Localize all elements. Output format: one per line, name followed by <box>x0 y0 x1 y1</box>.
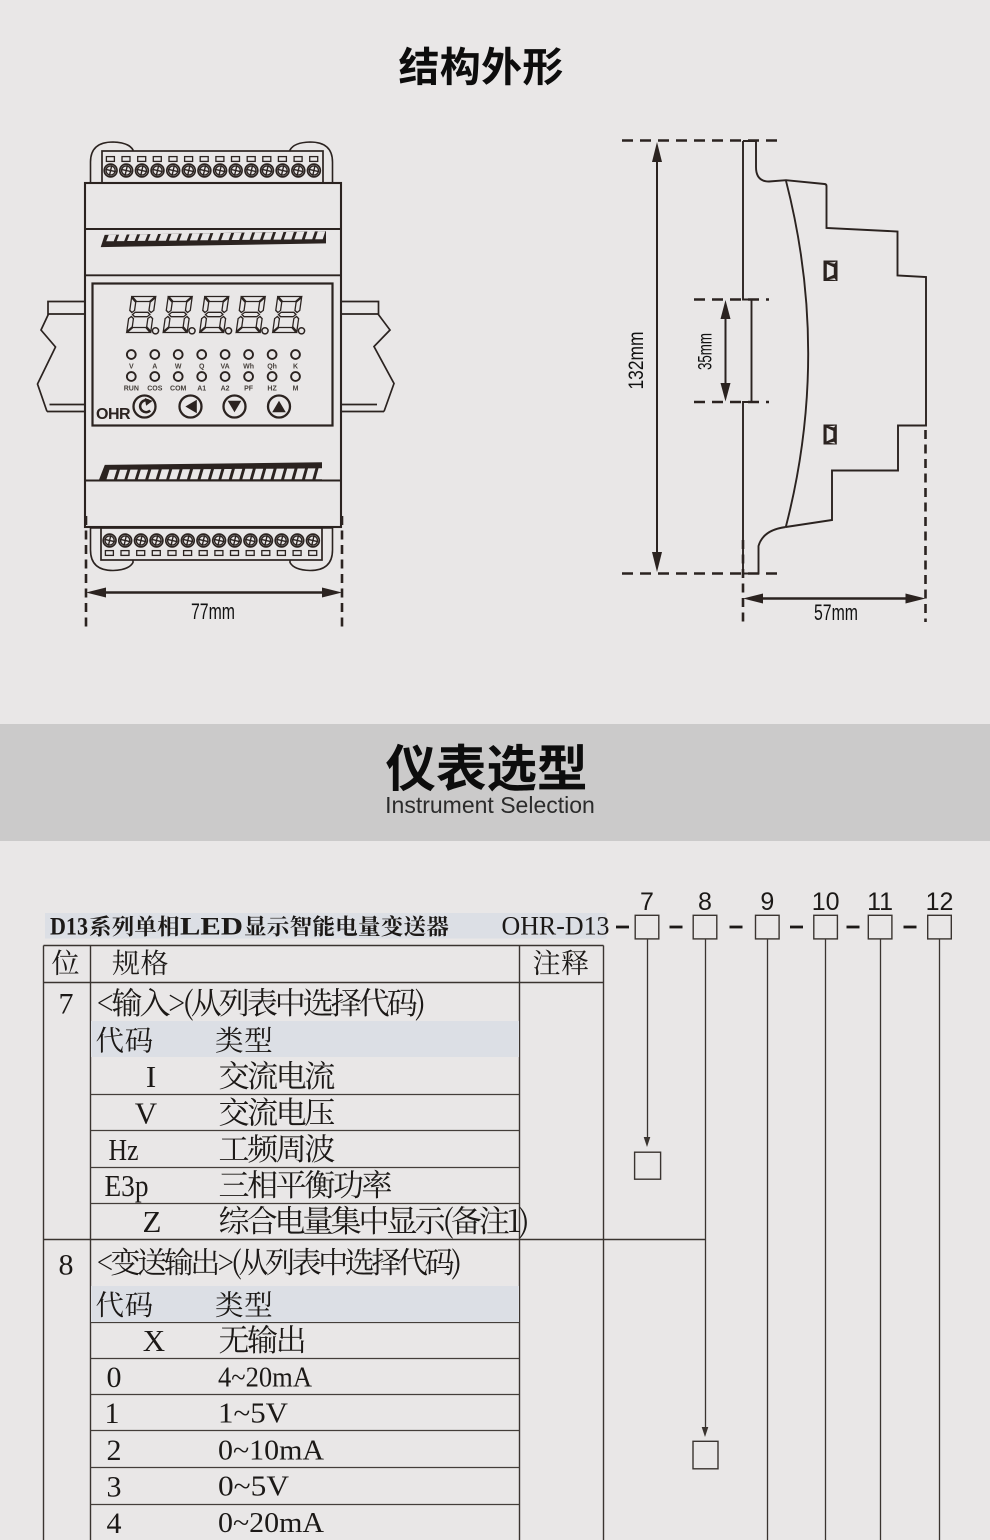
svg-text:Wh: Wh <box>243 364 254 371</box>
svg-text:11: 11 <box>867 888 893 916</box>
svg-text:57mm: 57mm <box>814 600 858 625</box>
svg-text:V: V <box>135 1096 158 1131</box>
svg-text:9: 9 <box>760 888 774 916</box>
svg-text:A: A <box>152 364 157 371</box>
svg-text:M: M <box>293 386 299 393</box>
svg-text:W: W <box>175 364 182 371</box>
svg-text:2: 2 <box>107 1434 122 1467</box>
svg-text:7: 7 <box>59 988 74 1021</box>
svg-text:12: 12 <box>926 888 954 916</box>
svg-text:132mm: 132mm <box>625 332 648 390</box>
svg-text:0~10mA: 0~10mA <box>218 1435 324 1467</box>
svg-text:A2: A2 <box>221 386 230 393</box>
svg-text:A1: A1 <box>197 386 206 393</box>
svg-text:Instrument Selection: Instrument Selection <box>385 792 595 818</box>
svg-text:3: 3 <box>107 1471 122 1504</box>
svg-text:COS: COS <box>147 386 163 393</box>
svg-text:PF: PF <box>244 386 254 393</box>
svg-text:K: K <box>293 364 298 371</box>
svg-text:0~5V: 0~5V <box>218 1471 289 1503</box>
svg-text:4: 4 <box>107 1507 122 1540</box>
svg-text:1: 1 <box>105 1397 120 1430</box>
svg-text:I: I <box>146 1059 156 1094</box>
svg-text:8: 8 <box>698 888 712 916</box>
svg-text:Q: Q <box>199 364 205 371</box>
svg-text:Z: Z <box>143 1204 162 1239</box>
svg-text:RUN: RUN <box>124 386 139 393</box>
svg-text:D13: D13 <box>50 914 88 941</box>
svg-text:OHR: OHR <box>96 406 131 423</box>
svg-text:Qh: Qh <box>267 364 277 371</box>
svg-text:VA: VA <box>220 364 229 371</box>
svg-text:0~20mA: 0~20mA <box>218 1507 324 1539</box>
svg-text:7: 7 <box>640 888 654 916</box>
svg-text:LED: LED <box>180 914 243 941</box>
svg-text:HZ: HZ <box>267 386 277 393</box>
svg-text:V: V <box>129 364 134 371</box>
svg-text:X: X <box>143 1323 165 1358</box>
svg-text:0: 0 <box>107 1361 122 1394</box>
svg-text:8: 8 <box>59 1249 74 1282</box>
svg-text:77mm: 77mm <box>191 599 235 624</box>
svg-text:E3p: E3p <box>105 1168 149 1203</box>
svg-text:COM: COM <box>170 386 187 393</box>
svg-text:4~20mA: 4~20mA <box>218 1362 312 1394</box>
svg-text:35mm: 35mm <box>696 333 717 370</box>
svg-text:1~5V: 1~5V <box>218 1398 288 1430</box>
svg-text:10: 10 <box>812 888 840 916</box>
svg-text:Hz: Hz <box>109 1132 139 1167</box>
svg-text:OHR-D13: OHR-D13 <box>502 912 610 941</box>
